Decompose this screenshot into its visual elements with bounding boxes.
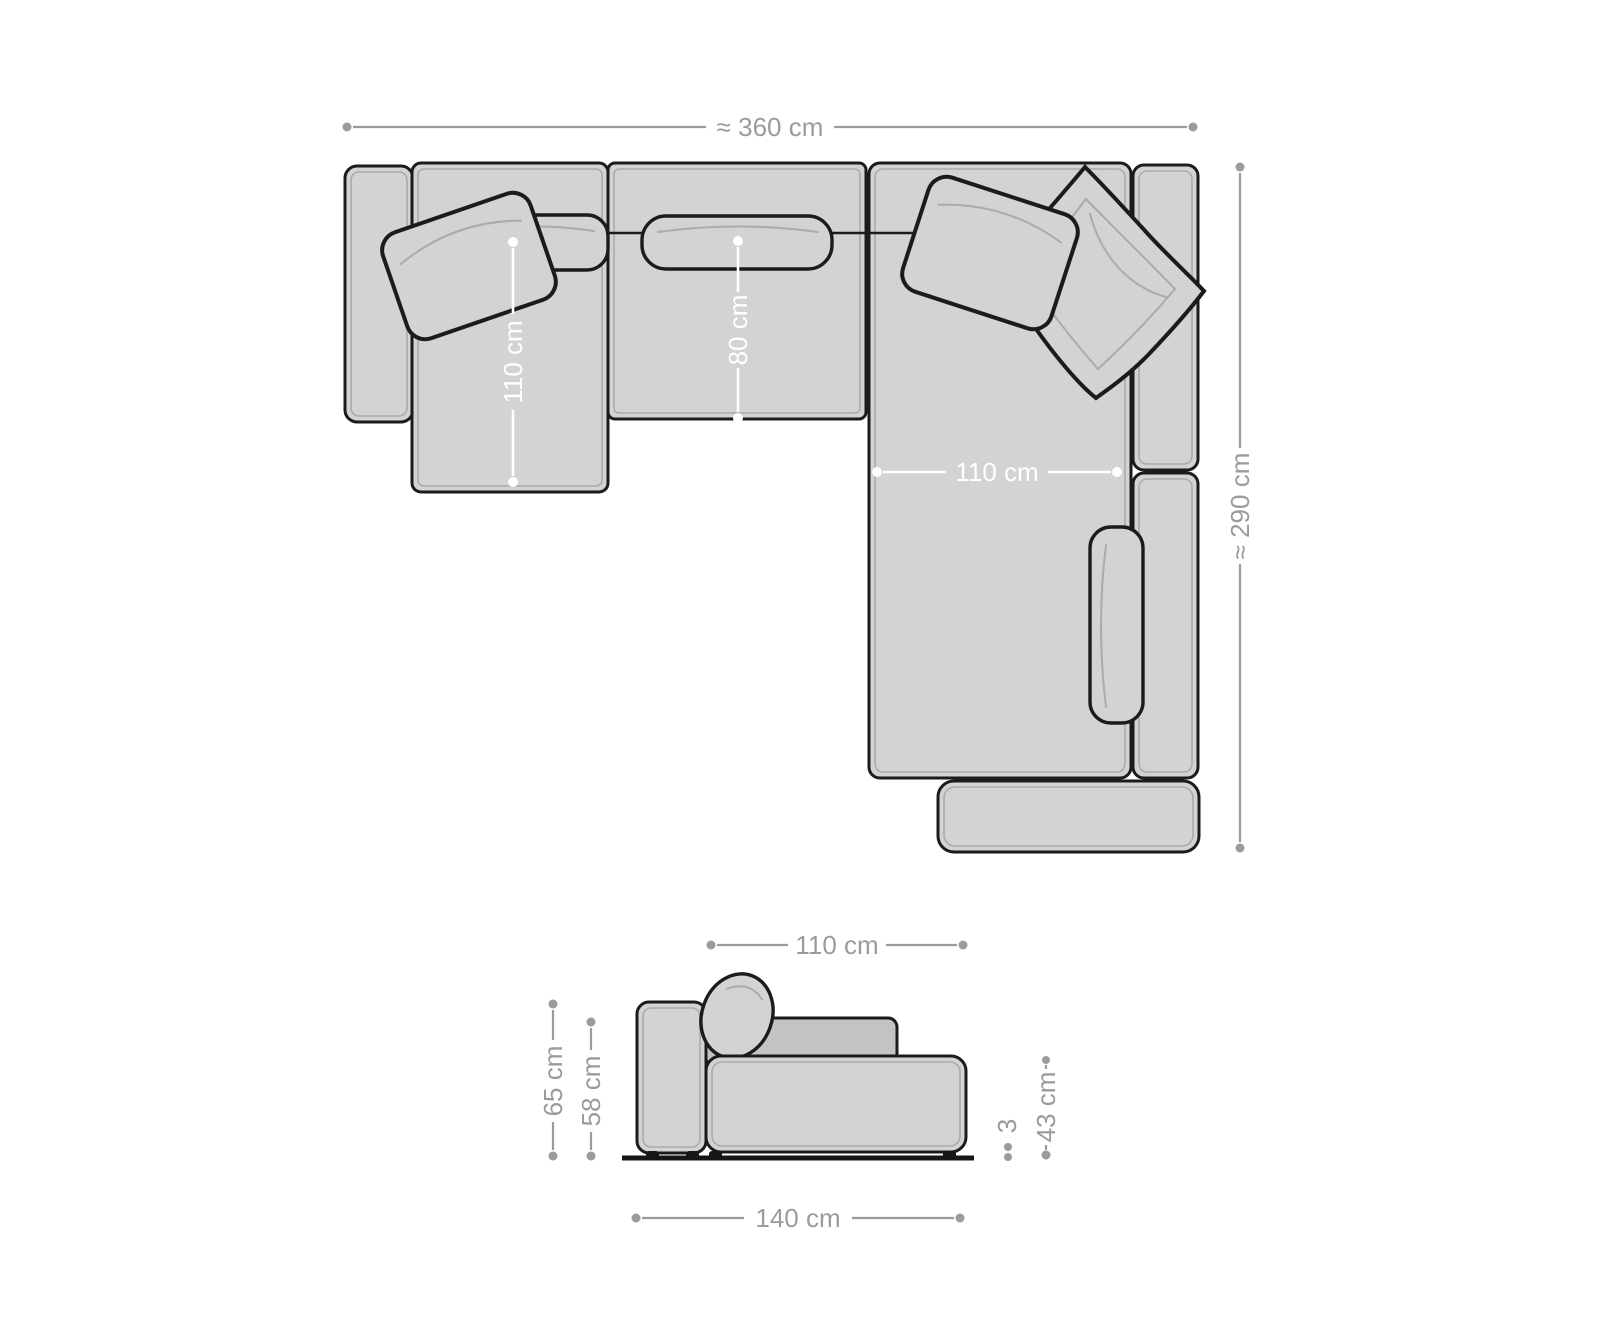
side-armrest bbox=[637, 1002, 706, 1153]
top-view: 110 cm 80 cm 110 cm bbox=[345, 163, 1204, 852]
side-view: 110 cm 65 cm 58 cm 43 cm 3 bbox=[538, 930, 1061, 1233]
dim-label-right-chaise-width: 110 cm bbox=[955, 457, 1038, 487]
dim-side-seat-depth: 110 cm bbox=[707, 930, 968, 960]
side-seat-body bbox=[706, 1056, 966, 1152]
dim-label-backrest-height: 58 cm bbox=[576, 1056, 606, 1127]
ottoman-module bbox=[938, 781, 1199, 852]
dim-label-middle-seat-depth: 80 cm bbox=[723, 295, 753, 366]
diagram-canvas: 110 cm 80 cm 110 cm ≈ 360 cm bbox=[0, 0, 1600, 1333]
lumbar-cushion-right-chaise bbox=[1090, 527, 1143, 723]
dim-label-armrest-height: 65 cm bbox=[538, 1046, 568, 1117]
dim-label-overall-depth: ≈ 290 cm bbox=[1225, 453, 1255, 560]
dim-armrest-height: 65 cm bbox=[538, 1000, 568, 1161]
dim-label-seat-height: 43 cm bbox=[1031, 1072, 1061, 1143]
sofa-dimension-diagram: 110 cm 80 cm 110 cm ≈ 360 cm bbox=[0, 0, 1600, 1333]
dim-label-overall-width: ≈ 360 cm bbox=[717, 112, 824, 142]
dim-label-total-depth: 140 cm bbox=[755, 1203, 840, 1233]
dim-foot-height: 3 bbox=[992, 1119, 1022, 1161]
dim-overall-depth: ≈ 290 cm bbox=[1225, 163, 1255, 853]
dim-overall-width: ≈ 360 cm bbox=[343, 112, 1198, 142]
dim-backrest-height: 58 cm bbox=[576, 1018, 606, 1161]
dim-label-left-chaise-depth: 110 cm bbox=[498, 320, 528, 403]
dim-label-foot-height: 3 bbox=[992, 1119, 1022, 1133]
dim-label-side-seat-depth: 110 cm bbox=[795, 930, 878, 960]
dim-seat-height: 43 cm bbox=[1031, 1056, 1061, 1160]
dim-total-depth: 140 cm bbox=[632, 1203, 965, 1233]
